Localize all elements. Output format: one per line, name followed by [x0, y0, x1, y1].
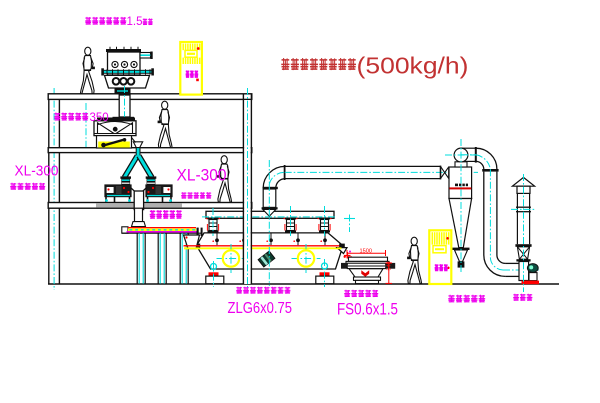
svg-text:XL-300: XL-300 [15, 163, 59, 180]
svg-text:350: 350 [90, 112, 109, 124]
svg-text:(500kg/h): (500kg/h) [357, 53, 469, 79]
svg-text:1.5: 1.5 [127, 16, 143, 28]
svg-text:XL-300: XL-300 [177, 167, 227, 185]
svg-text:FS0.6x1.5: FS0.6x1.5 [337, 301, 398, 319]
svg-text:1500: 1500 [360, 249, 372, 255]
svg-text:ZLG6x0.75: ZLG6x0.75 [228, 300, 293, 317]
svg-text:540: 540 [387, 262, 393, 271]
